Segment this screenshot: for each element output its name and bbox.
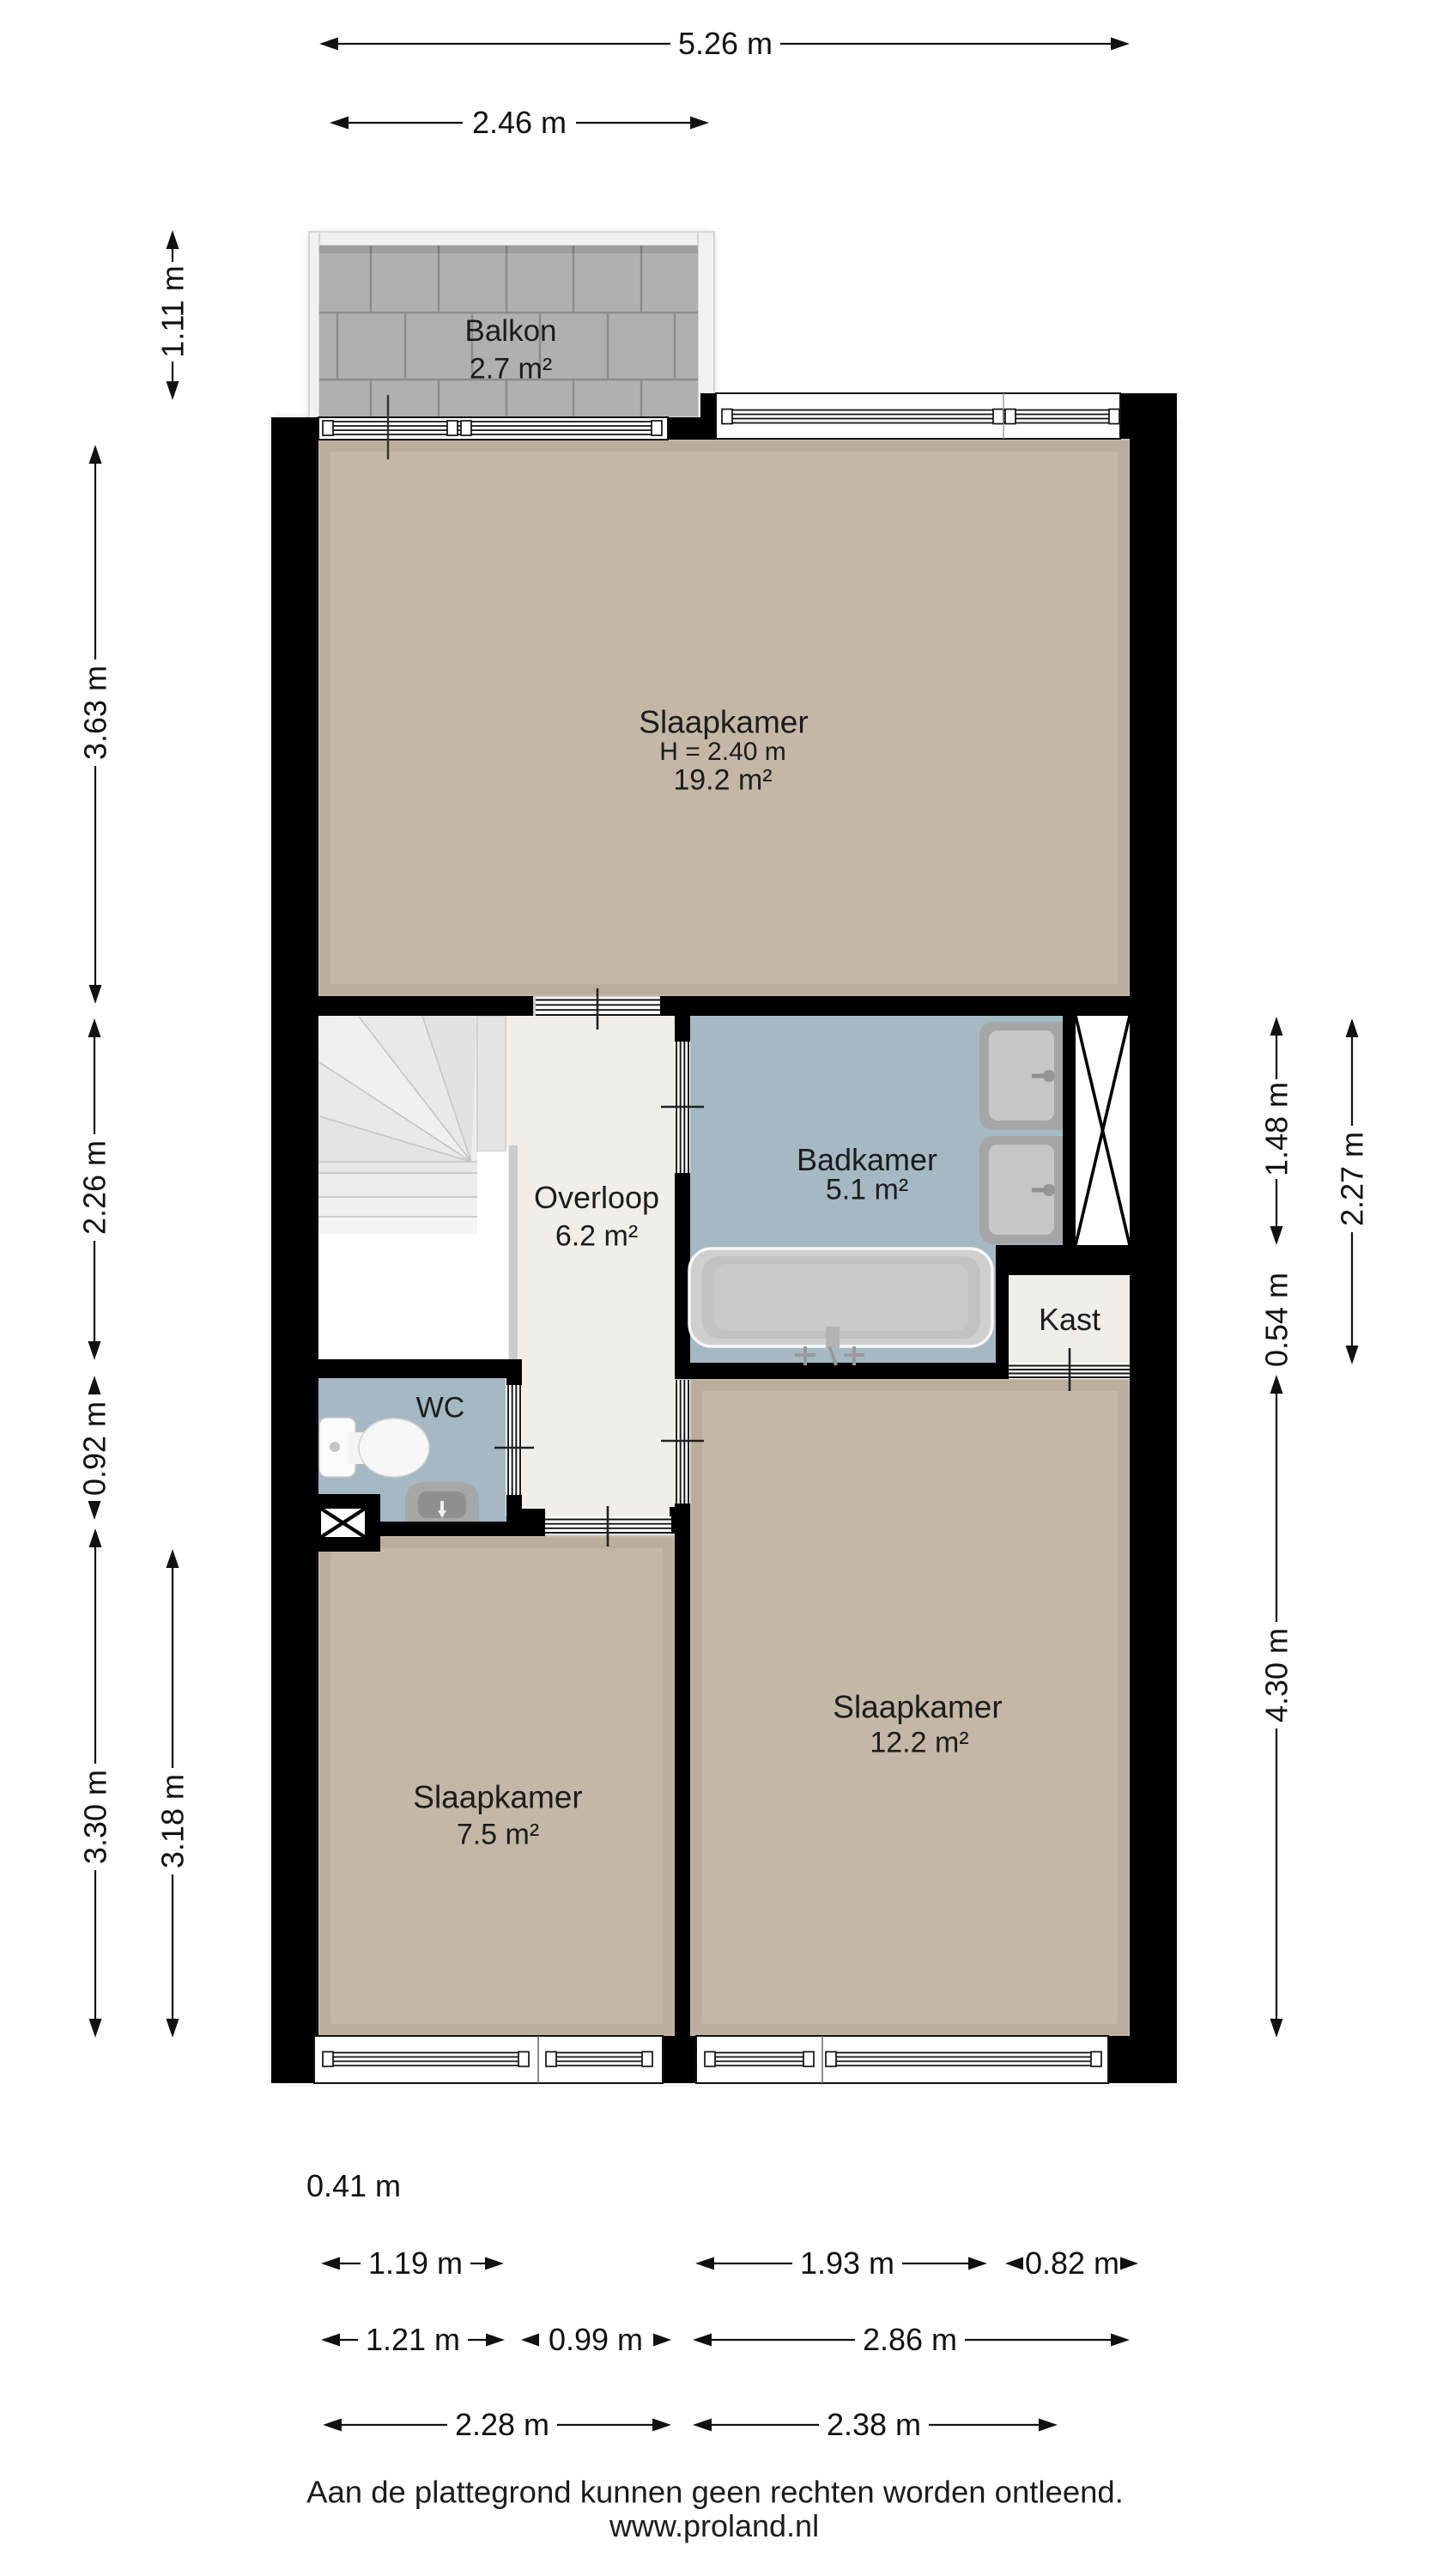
svg-text:6.2 m²: 6.2 m² (555, 1220, 638, 1253)
svg-text:1.11 m: 1.11 m (155, 265, 190, 357)
svg-text:19.2 m²: 19.2 m² (673, 764, 772, 797)
svg-text:2.28 m: 2.28 m (455, 2407, 549, 2442)
svg-text:Slaapkamer: Slaapkamer (833, 1690, 1002, 1725)
svg-text:3.30 m: 3.30 m (77, 1770, 112, 1864)
svg-text:4.30 m: 4.30 m (1258, 1628, 1294, 1722)
svg-text:1.21 m: 1.21 m (366, 2322, 460, 2357)
svg-text:WC: WC (416, 1392, 465, 1425)
svg-text:Balkon: Balkon (464, 314, 556, 348)
svg-text:1.93 m: 1.93 m (800, 2245, 894, 2281)
svg-text:2.86 m: 2.86 m (863, 2322, 957, 2357)
svg-text:2.38 m: 2.38 m (827, 2407, 921, 2442)
svg-text:0.92 m: 0.92 m (76, 1401, 112, 1496)
svg-text:0.99 m: 0.99 m (549, 2322, 643, 2357)
svg-text:12.2 m²: 12.2 m² (870, 1727, 968, 1759)
svg-text:3.63 m: 3.63 m (77, 665, 112, 760)
svg-text:Overloop: Overloop (534, 1180, 659, 1215)
svg-text:Aan de plattegrond kunnen geen: Aan de plattegrond kunnen geen rechten w… (306, 2474, 1124, 2509)
svg-text:5.1 m²: 5.1 m² (826, 1174, 908, 1206)
svg-text:3.18 m: 3.18 m (155, 1774, 190, 1868)
svg-text:Kast: Kast (1039, 1302, 1100, 1337)
svg-text:Slaapkamer: Slaapkamer (639, 705, 808, 740)
svg-text:1.48 m: 1.48 m (1258, 1082, 1294, 1176)
svg-text:0.54 m: 0.54 m (1258, 1273, 1294, 1367)
svg-text:1.19 m: 1.19 m (368, 2245, 463, 2281)
svg-text:2.27 m: 2.27 m (1334, 1132, 1369, 1226)
svg-text:2.46 m: 2.46 m (472, 105, 567, 140)
svg-text:5.26 m: 5.26 m (678, 26, 773, 61)
svg-text:2.7 m²: 2.7 m² (470, 353, 552, 386)
svg-text:7.5 m²: 7.5 m² (457, 1819, 539, 1851)
svg-text:0.41 m: 0.41 m (306, 2168, 401, 2203)
svg-text:www.proland.nl: www.proland.nl (609, 2508, 819, 2543)
svg-text:Slaapkamer: Slaapkamer (413, 1780, 582, 1815)
svg-text:Badkamer: Badkamer (797, 1142, 937, 1177)
svg-text:0.82 m: 0.82 m (1025, 2245, 1119, 2281)
svg-text:H = 2.40 m: H = 2.40 m (659, 738, 786, 766)
svg-text:2.26 m: 2.26 m (76, 1140, 112, 1235)
